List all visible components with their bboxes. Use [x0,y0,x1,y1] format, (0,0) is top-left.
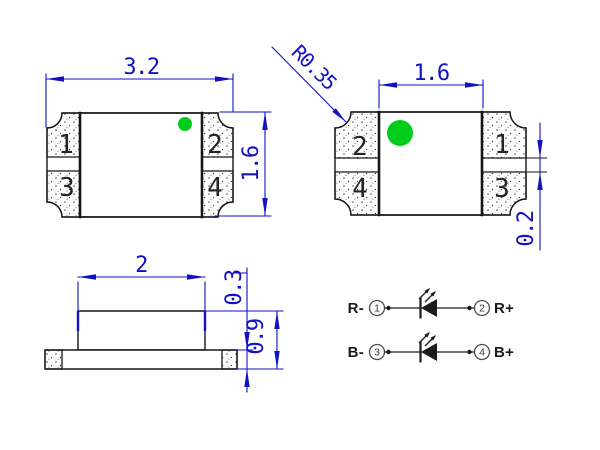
blue-positive-label: B+ [494,344,514,361]
top-view: 1 2 3 4 3.2 1.6 [46,55,271,217]
blue-negative-label: B- [348,344,364,361]
dim-3-2-label: 3.2 [123,55,158,80]
pin-4-number: 4 [479,347,485,359]
cathode-marker-dot [178,117,192,131]
blue-led-triangle [421,343,437,361]
side-view-lens [78,311,205,350]
pin-2-number: 2 [479,303,485,315]
schematic-row-red: R- 1 2 R+ [348,288,515,319]
pin-3-number: 3 [374,347,380,359]
side-view-pad-right [222,350,237,369]
dim-r0-35-label: R0.35 [287,40,342,95]
dim-0-3-label: 0.3 [222,270,247,305]
dim-1-6-width-label: 1.6 [413,61,448,86]
dim-1-6-height-label: 1.6 [239,146,264,181]
bottom-view-pad-1-number: 1 [494,130,510,160]
dimension-2: 2 [78,253,205,311]
led-package-drawing: 1 2 3 4 3.2 1.6 2 1 4 3 [0,0,600,450]
side-view-pad-left [45,350,62,369]
bottom-view-pad-2-number: 2 [352,132,368,162]
top-view-pad-3-number: 3 [59,173,75,203]
bottom-view-pad-4-number: 4 [352,174,368,204]
dim-0-2-label: 0.2 [514,211,539,246]
red-positive-label: R+ [494,300,514,317]
dimension-1-6-width: 1.6 [379,61,483,108]
pin-1-number: 1 [374,303,380,315]
bottom-view-pad-3-number: 3 [494,174,510,204]
dimension-r0-35: R0.35 [272,40,346,122]
junction-dot [467,350,471,354]
dim-2-label: 2 [135,253,147,278]
side-view: 2 0.3 0.9 [45,253,283,392]
schematic-row-blue: B- 3 4 B+ [348,332,515,363]
side-view-base [45,350,237,369]
top-view-pad-4-number: 4 [207,173,223,203]
cathode-marker-dot-large [387,120,413,146]
top-view-pad-2-number: 2 [207,130,223,160]
gap-extension-ticks [526,158,547,172]
junction-dot [467,306,471,310]
circuit-schematic: R- 1 2 R+ B- 3 [348,288,515,363]
dim-0-9-label: 0.9 [244,319,269,354]
red-negative-label: R- [348,300,364,317]
red-led-triangle [421,299,437,317]
bottom-view: 2 1 4 3 1.6 R0.35 0.2 [272,40,547,250]
top-view-pad-1-number: 1 [58,130,74,160]
